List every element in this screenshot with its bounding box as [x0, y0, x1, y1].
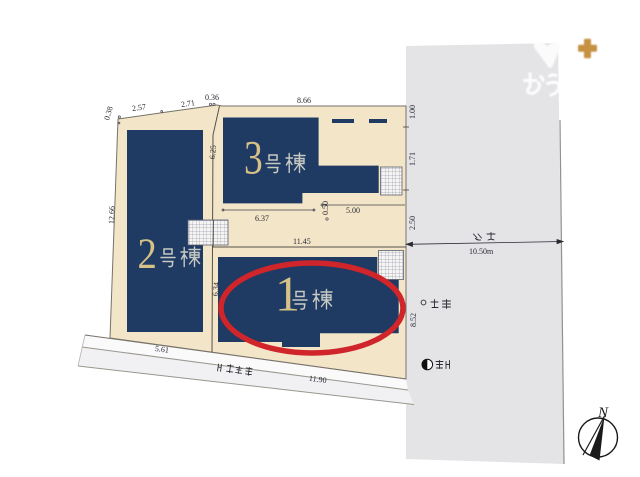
svg-text:6.37: 6.37 [255, 214, 269, 223]
svg-text:0.50: 0.50 [321, 201, 330, 215]
svg-text:6.34: 6.34 [211, 282, 221, 297]
svg-text:0.36: 0.36 [205, 93, 219, 102]
svg-text:12.66: 12.66 [107, 206, 117, 224]
svg-text:N: N [597, 405, 609, 421]
svg-text:2: 2 [138, 230, 157, 277]
svg-text:1.71: 1.71 [408, 152, 417, 166]
svg-text:8.66: 8.66 [297, 96, 311, 105]
svg-text:11.45: 11.45 [293, 237, 311, 246]
svg-text:3: 3 [244, 132, 263, 184]
svg-text:6.25: 6.25 [208, 145, 218, 160]
svg-text:1.00: 1.00 [408, 105, 417, 119]
svg-text:5.00: 5.00 [346, 206, 360, 215]
svg-text:8.52: 8.52 [409, 313, 418, 327]
svg-text:10.50m: 10.50m [469, 247, 494, 256]
svg-text:2.50: 2.50 [408, 216, 417, 230]
